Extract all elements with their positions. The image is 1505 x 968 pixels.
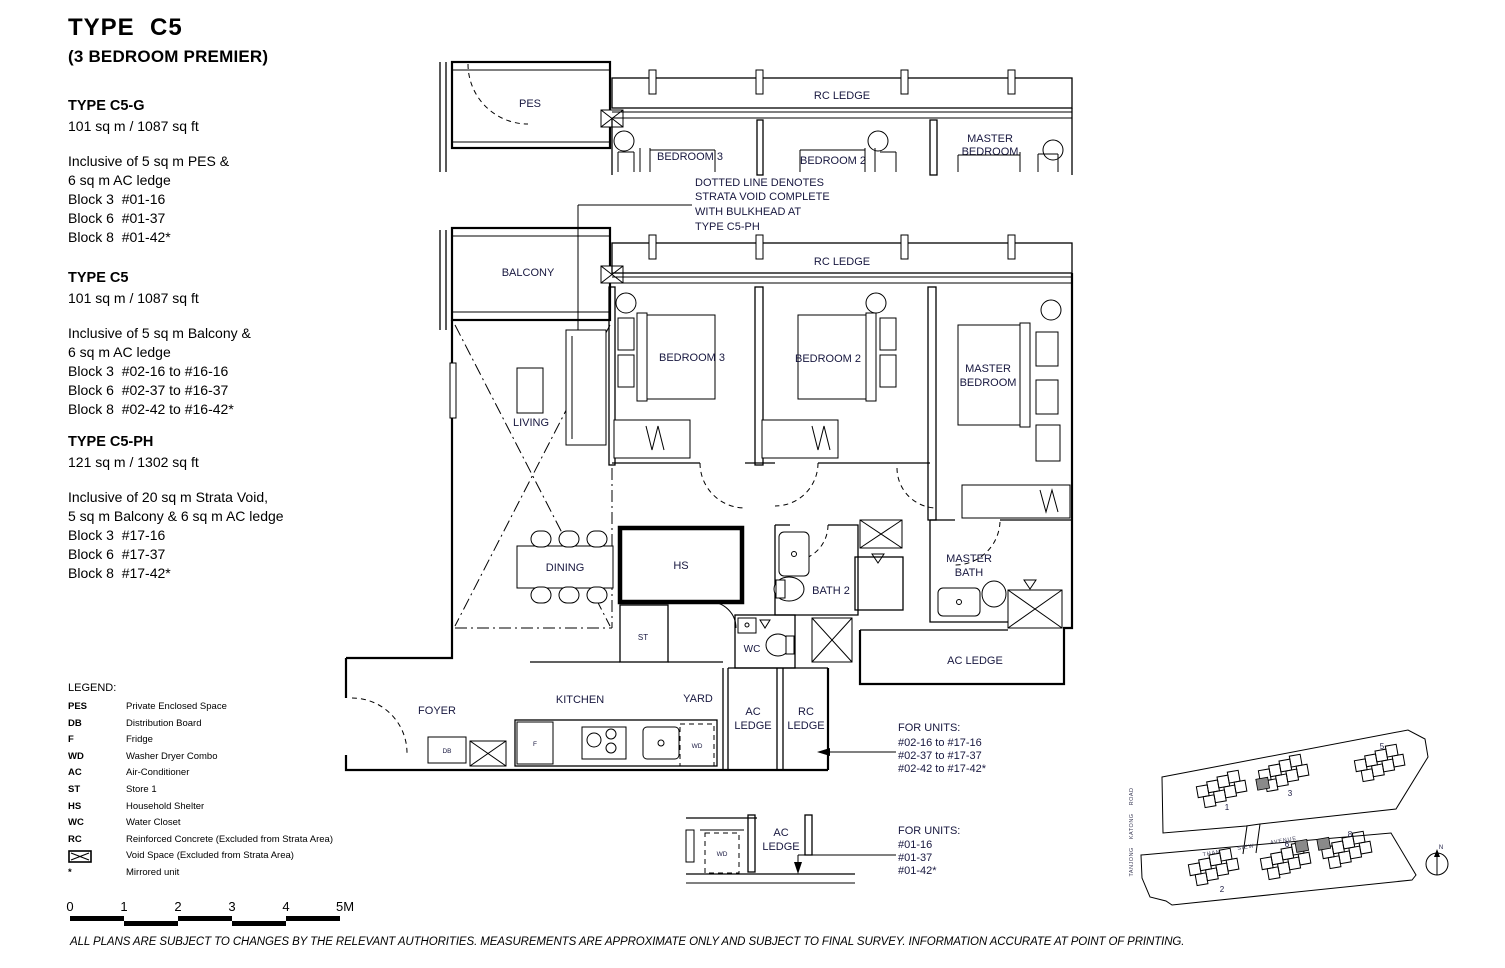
label-ac: AC bbox=[745, 706, 760, 718]
window bbox=[686, 830, 694, 862]
bottom-partial-plan: WD AC LEDGE bbox=[686, 815, 855, 883]
window bbox=[450, 363, 456, 418]
leader-arrow-icon bbox=[817, 748, 830, 756]
svg-text:#02-16 to #17-16: #02-16 to #17-16 bbox=[898, 737, 982, 749]
svg-text:WITH BULKHEAD AT: WITH BULKHEAD AT bbox=[695, 206, 801, 218]
svg-text:#02-37 to #17-37: #02-37 to #17-37 bbox=[898, 750, 982, 762]
room-label-living: LIVING bbox=[513, 417, 549, 429]
bedroom2-door-arc bbox=[775, 463, 818, 506]
road-label-tham-siew: THAM SIEW AVENUE bbox=[1202, 836, 1297, 858]
riser-shaft bbox=[855, 557, 903, 610]
room-label-balcony: BALCONY bbox=[502, 267, 555, 279]
nightstand bbox=[880, 355, 896, 387]
svg-text:#01-16: #01-16 bbox=[898, 839, 932, 851]
coffee-table bbox=[517, 368, 543, 413]
label-ac-ledge: AC LEDGE bbox=[947, 655, 1003, 667]
room-label-yard: YARD bbox=[683, 693, 713, 705]
block-number: 2 bbox=[1220, 885, 1225, 894]
room-label-dining: DINING bbox=[546, 562, 585, 574]
for-units-lower: FOR UNITS: #01-16 #01-37 #01-42* bbox=[794, 825, 960, 877]
road-label-tanjong-katong: TANJONG KATONG ROAD bbox=[1129, 787, 1135, 876]
master-bedroom-door-arc bbox=[897, 468, 937, 508]
for-units-upper: FOR UNITS: #02-16 to #17-16 #02-37 to #1… bbox=[817, 722, 987, 775]
room-label-pes: PES bbox=[519, 98, 541, 110]
block-number: 8 bbox=[1348, 830, 1353, 839]
hob bbox=[582, 727, 626, 759]
ceiling-fixture-icon bbox=[614, 131, 634, 151]
chair bbox=[531, 587, 551, 603]
label-rc-ledge: RC LEDGE bbox=[814, 90, 870, 102]
floor-trap-icon bbox=[760, 620, 770, 628]
block-number: 1 bbox=[1225, 803, 1230, 812]
chair bbox=[559, 531, 579, 547]
ceiling-fixture-icon bbox=[1041, 300, 1061, 320]
void-space-symbol bbox=[860, 520, 902, 548]
room-label-master-bedroom: MASTER bbox=[965, 363, 1011, 375]
chair bbox=[531, 531, 551, 547]
svg-text:N: N bbox=[1439, 845, 1443, 851]
main-unit-plan: BALCONY RC LEDGE LIVING bbox=[346, 228, 1072, 770]
room-label-bath2: BATH 2 bbox=[812, 585, 850, 597]
block-number: 5 bbox=[1380, 742, 1385, 751]
floorplan-brochure-page: { "header": { "title": "TYPE C5", "subti… bbox=[0, 0, 1505, 968]
ceiling-fixture-icon bbox=[616, 293, 636, 313]
shower-icon bbox=[1024, 580, 1036, 589]
floorplan-drawing: PES RC LEDGE BEDROOM 3 BEDROOM 2 MASTER … bbox=[0, 0, 1505, 968]
svg-text:DOTTED LINE DENOTES: DOTTED LINE DENOTES bbox=[695, 177, 824, 189]
svg-text:#01-42*: #01-42* bbox=[898, 865, 937, 877]
nightstand bbox=[1036, 380, 1058, 414]
bed-headboard bbox=[1020, 323, 1030, 427]
north-arrow-icon: N bbox=[1426, 845, 1448, 875]
chair bbox=[587, 531, 607, 547]
room-label-kitchen: KITCHEN bbox=[556, 694, 604, 706]
void-space-symbol bbox=[470, 741, 506, 766]
chair bbox=[587, 587, 607, 603]
room-label-master-bedroom: BEDROOM bbox=[962, 146, 1019, 158]
nightstand bbox=[618, 318, 634, 350]
label-ac: AC bbox=[773, 827, 788, 839]
entrance-door-arc bbox=[352, 698, 407, 753]
svg-text:#01-37: #01-37 bbox=[898, 852, 932, 864]
room-label-bedroom2: BEDROOM 2 bbox=[795, 353, 861, 365]
room-label-foyer: FOYER bbox=[418, 705, 456, 717]
label-db: DB bbox=[442, 748, 451, 755]
bedroom3-door-arc bbox=[700, 463, 745, 508]
master-bath-toilet bbox=[982, 581, 1006, 607]
bed bbox=[958, 325, 1020, 425]
pes-gate-arc bbox=[468, 64, 528, 124]
label-ledge: LEDGE bbox=[787, 720, 824, 732]
hs-door-arc bbox=[710, 602, 736, 628]
highlighted-unit bbox=[1295, 839, 1309, 852]
highlighted-unit bbox=[1256, 777, 1270, 790]
chair bbox=[559, 587, 579, 603]
room-label-master-bath: BATH bbox=[955, 567, 984, 579]
ceiling-fixture-icon bbox=[868, 131, 888, 151]
svg-text:TYPE C5-PH: TYPE C5-PH bbox=[695, 221, 760, 233]
wc-sink bbox=[738, 618, 756, 633]
ceiling-fixture-icon bbox=[1043, 140, 1063, 160]
room-label-wc: WC bbox=[744, 644, 761, 655]
bath2-sink bbox=[779, 532, 809, 576]
ceiling-fixture-icon bbox=[866, 293, 886, 313]
svg-text:STRATA VOID COMPLETE: STRATA VOID COMPLETE bbox=[695, 191, 830, 203]
label-rc-ledge: RC LEDGE bbox=[814, 256, 870, 268]
label-rc: RC bbox=[798, 706, 814, 718]
bed-headboard bbox=[866, 313, 876, 401]
block-number: 3 bbox=[1288, 789, 1293, 798]
label-wd: WD bbox=[717, 851, 728, 858]
kitchen-sink bbox=[643, 727, 679, 759]
svg-text:FOR UNITS:: FOR UNITS: bbox=[898, 825, 960, 837]
label-ledge: LEDGE bbox=[734, 720, 771, 732]
room-label-bedroom3: BEDROOM 3 bbox=[657, 151, 723, 163]
bed-headboard bbox=[637, 313, 647, 401]
room-label-master-bedroom: BEDROOM bbox=[960, 377, 1017, 389]
void-space-symbol bbox=[812, 618, 852, 662]
room-label-st: ST bbox=[638, 633, 648, 642]
room-label-hs: HS bbox=[673, 560, 688, 572]
highlighted-unit bbox=[1317, 837, 1331, 850]
label-wd: WD bbox=[692, 743, 703, 750]
block-number: 6 bbox=[1285, 840, 1290, 849]
top-partial-plan: PES RC LEDGE BEDROOM 3 BEDROOM 2 MASTER … bbox=[440, 62, 1072, 175]
leader-arrow-icon bbox=[794, 862, 802, 874]
nightstand bbox=[880, 318, 896, 350]
floor-trap-icon bbox=[872, 554, 884, 563]
svg-text:FOR UNITS:: FOR UNITS: bbox=[898, 722, 960, 734]
wardrobe bbox=[762, 420, 838, 458]
wardrobe bbox=[614, 420, 690, 458]
master-bath-sink bbox=[938, 588, 980, 616]
room-label-master-bath: MASTER bbox=[946, 553, 992, 565]
room-label-bedroom2: BEDROOM 2 bbox=[800, 155, 866, 167]
dresser bbox=[1036, 425, 1060, 461]
wardrobe bbox=[962, 485, 1070, 518]
site-map: TANJONG KATONG ROAD THAM SIEW AVENUE 1 3… bbox=[1129, 730, 1448, 905]
room-label-bedroom3: BEDROOM 3 bbox=[659, 352, 725, 364]
room-label-master-bedroom: MASTER bbox=[967, 133, 1013, 145]
nightstand bbox=[1036, 332, 1058, 366]
void-space-symbol bbox=[1008, 590, 1062, 628]
nightstand bbox=[618, 355, 634, 387]
label-fridge: F bbox=[533, 741, 537, 748]
label-ledge: LEDGE bbox=[762, 841, 799, 853]
svg-text:#02-42 to #17-42*: #02-42 to #17-42* bbox=[898, 763, 987, 775]
